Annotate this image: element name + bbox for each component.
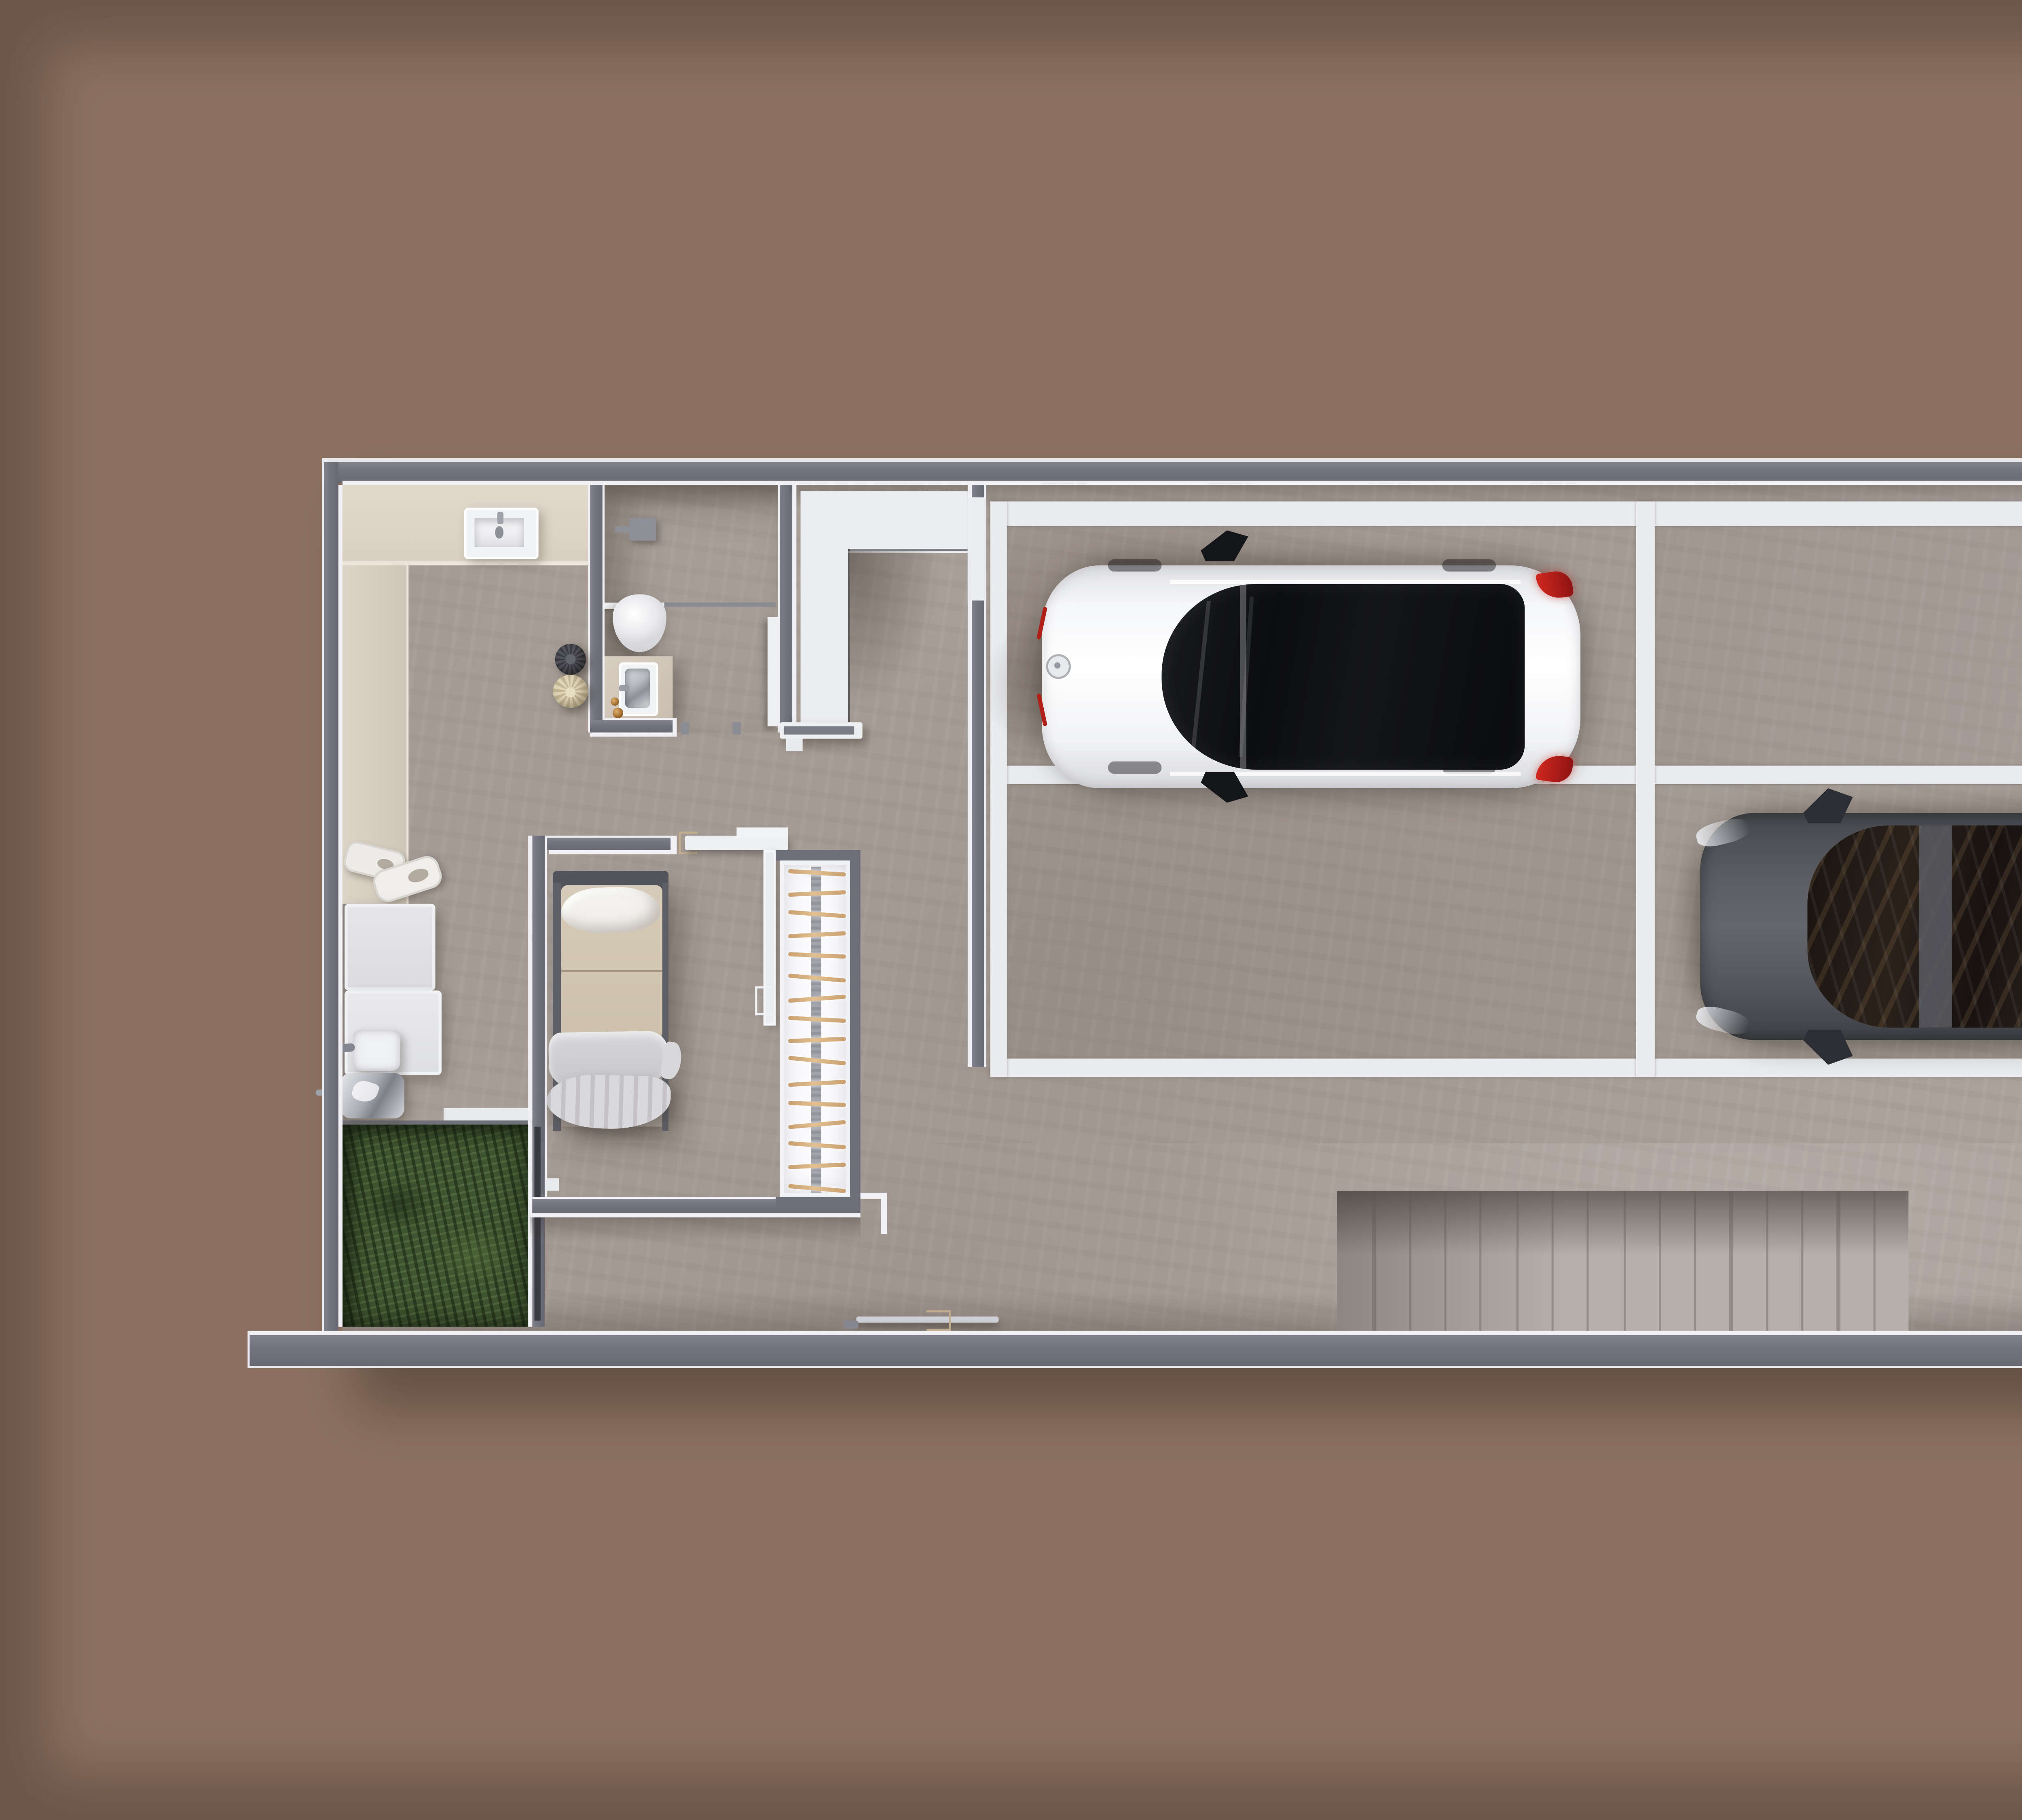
kitchen-pot [341, 1073, 404, 1118]
ramp-plank-joint [1587, 1191, 1589, 1331]
bathroom-wall-west [590, 485, 601, 732]
stair-tread [787, 910, 845, 918]
kitchen-counter-edge-v [406, 563, 409, 904]
trim [673, 717, 677, 736]
car-glass-roof [1161, 584, 1525, 770]
stair-rail [684, 836, 787, 849]
staircase [775, 849, 859, 1218]
trim [343, 481, 2022, 485]
entry-landing-rail [779, 721, 863, 739]
car-glass-roof [1807, 825, 2022, 1028]
shower-glass-line [664, 603, 776, 606]
trim [250, 1365, 2022, 1369]
ramp-plank-joint [1658, 1191, 1661, 1331]
ramp-plank-joint [1873, 1191, 1875, 1331]
kitchen-pan [353, 1030, 400, 1071]
white-car [1038, 528, 1584, 805]
stair-tread [787, 1016, 845, 1023]
stair-tread [787, 994, 845, 1003]
ramp-plank-joint [1444, 1191, 1447, 1331]
trim [590, 732, 673, 736]
parking-line-left [989, 502, 1007, 1077]
pot-highlight [350, 1078, 380, 1105]
stair-tread [787, 1141, 845, 1150]
stair-tread [787, 931, 845, 939]
stair-tread [787, 1100, 845, 1107]
glass-reflection [1807, 825, 2022, 1028]
trim [250, 1331, 2022, 1335]
ramp-plank-joint [1516, 1191, 1518, 1331]
window-glass [534, 1127, 540, 1321]
ramp-plank-joint [1766, 1191, 1768, 1331]
grass-north-white-band [444, 1107, 543, 1120]
stair-tread [787, 889, 845, 896]
grass-north-edge [343, 1120, 543, 1124]
parking-line-bottom [989, 1058, 2022, 1077]
glass-streak [1191, 601, 1211, 753]
stair-tread [787, 1056, 845, 1067]
ramp-plank-joint [1837, 1191, 1840, 1331]
dark-car [1688, 792, 2022, 1060]
ramp-plank-joint [1480, 1191, 1482, 1331]
trim [321, 458, 2022, 462]
grass-patch [343, 1123, 530, 1327]
ramp-corner-shadow [1337, 1191, 1565, 1331]
stair-tread [787, 973, 845, 982]
roof-pillar [1919, 825, 1952, 1028]
window-sill-stub [544, 1178, 558, 1191]
bedroom-wall-north [537, 838, 671, 850]
entry-wall-white-cap [967, 497, 986, 601]
ramp-plank-joint [1730, 1191, 1732, 1331]
ramp-plank-joint [1409, 1191, 1411, 1331]
glass-reflection [1807, 825, 2022, 1028]
ramp-plank-joint [1551, 1191, 1554, 1331]
car-wheel-hint [1108, 559, 1162, 572]
bathroom-wall-south [590, 720, 673, 733]
door-jamb [681, 722, 688, 734]
bed-sheet-seam [560, 970, 661, 972]
entry-door-handle [925, 1309, 950, 1330]
stair-tread [787, 1183, 845, 1193]
entry-floor-column [801, 551, 848, 722]
shower-arm [615, 526, 631, 532]
bed-pillow [560, 886, 661, 935]
pouf-center [565, 686, 576, 696]
stair-tread [787, 868, 845, 876]
entry-floor-edge-h [848, 550, 968, 552]
tray-hole [406, 866, 429, 883]
bathroom-door-leaf [766, 617, 778, 726]
trim [601, 485, 605, 718]
entry-floor-edge-v [848, 550, 850, 723]
entry-floor-top [801, 490, 968, 552]
trim [544, 836, 547, 1199]
badge-dot [1054, 662, 1060, 669]
kitchen-cabinet-1 [345, 904, 435, 990]
stair-tread [787, 1079, 845, 1086]
vanity-faucet-icon [619, 685, 630, 690]
door-jamb [732, 722, 740, 734]
ramp-plank-joint [1623, 1191, 1625, 1331]
car-roof-rail [1170, 579, 1521, 583]
kitchen-sink [464, 508, 539, 559]
outer-wall-bottom [250, 1334, 2022, 1365]
trim [528, 836, 531, 1327]
entry-door-hinge [843, 1320, 857, 1329]
vanity-sink [619, 662, 658, 716]
pouf-light [553, 675, 588, 708]
trim [601, 717, 673, 720]
ramp-plank-joint [1694, 1191, 1696, 1331]
driveway-ramp [1337, 1191, 1908, 1331]
vw-badge-icon [1046, 654, 1071, 679]
kitchen-counter-edge-h [343, 561, 590, 565]
bottom-wall-cap [247, 1331, 250, 1369]
car-mirror [1201, 530, 1248, 561]
stair-tread [787, 1163, 845, 1170]
trim [549, 850, 670, 853]
stair-rail-step [736, 827, 788, 837]
bedroom-door-cap [670, 835, 676, 853]
kitchen-faucet-icon [496, 512, 502, 524]
south-wall-return-v [881, 1193, 887, 1234]
entry-landing-stub [785, 739, 802, 750]
trim [537, 835, 671, 838]
glass-seam [1240, 584, 1245, 770]
amber-cup-2 [613, 708, 622, 717]
trim [338, 485, 343, 1327]
floorplan-stage [0, 0, 2022, 1820]
car-wheel-hint [1442, 559, 1496, 572]
stair-treads [775, 849, 859, 1218]
ramp-plank-joint [1373, 1191, 1375, 1331]
shower-fixture [629, 518, 656, 541]
pouf-center [564, 653, 575, 664]
ramp-plank-joint [1801, 1191, 1804, 1331]
stair-tread [787, 953, 845, 960]
door-bracket-white [754, 985, 775, 1014]
trim [777, 485, 780, 732]
car-wheel-hint [1108, 762, 1162, 774]
trim [792, 485, 795, 732]
trim [321, 458, 324, 1331]
outer-wall-left [324, 461, 338, 1330]
bathroom-wall-east [780, 485, 793, 732]
rail-core [784, 725, 854, 734]
outer-wall-top [324, 461, 2022, 482]
stair-tread [787, 1037, 845, 1043]
parking-line-center [1636, 502, 1655, 1077]
stair-tread [787, 1120, 845, 1130]
parking-line-top [989, 502, 2022, 526]
